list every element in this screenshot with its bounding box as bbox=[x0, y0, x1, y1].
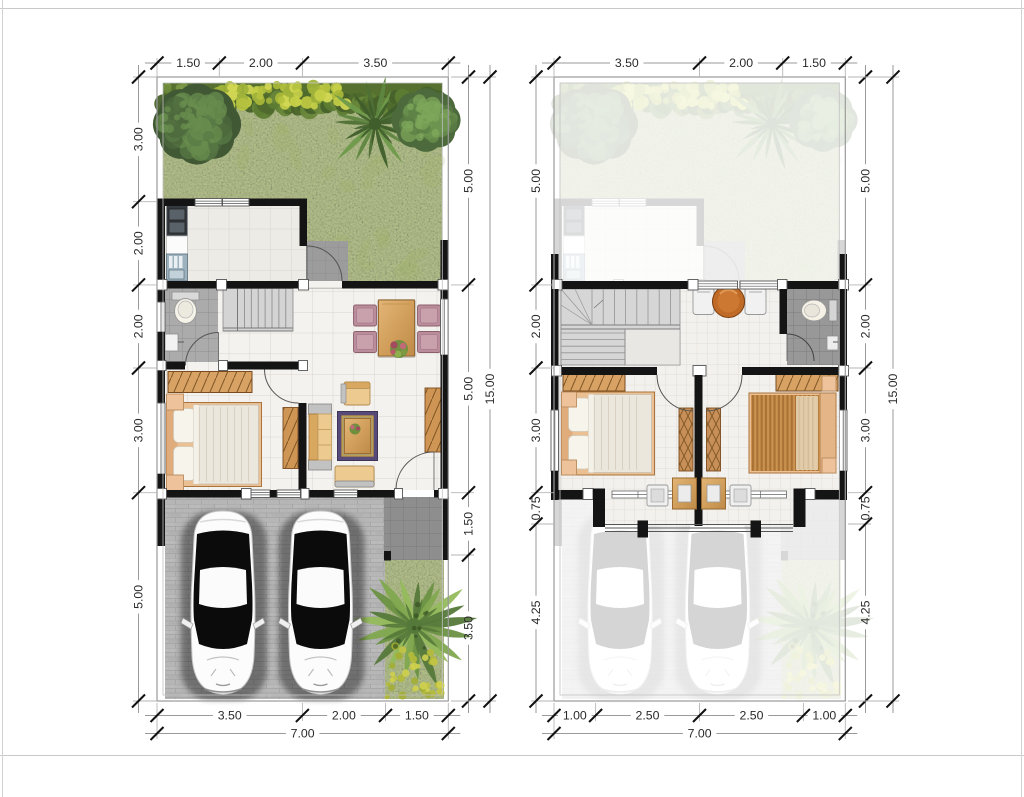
svg-text:15.00: 15.00 bbox=[886, 373, 900, 404]
svg-text:7.00: 7.00 bbox=[291, 727, 315, 741]
svg-text:1.50: 1.50 bbox=[176, 56, 200, 70]
svg-text:5.00: 5.00 bbox=[132, 585, 146, 609]
svg-text:4.25: 4.25 bbox=[859, 600, 873, 624]
svg-text:0.75: 0.75 bbox=[529, 496, 543, 520]
svg-text:2.00: 2.00 bbox=[132, 314, 146, 338]
svg-text:3.50: 3.50 bbox=[462, 616, 476, 640]
svg-text:2.50: 2.50 bbox=[740, 709, 764, 723]
svg-text:1.50: 1.50 bbox=[462, 512, 476, 536]
svg-text:7.00: 7.00 bbox=[688, 727, 712, 741]
svg-text:5.00: 5.00 bbox=[859, 169, 873, 193]
svg-text:1.50: 1.50 bbox=[802, 56, 826, 70]
svg-text:2.00: 2.00 bbox=[332, 709, 356, 723]
svg-text:2.00: 2.00 bbox=[729, 56, 753, 70]
svg-text:15.00: 15.00 bbox=[483, 373, 497, 404]
svg-text:3.50: 3.50 bbox=[218, 709, 242, 723]
svg-text:5.00: 5.00 bbox=[462, 169, 476, 193]
svg-text:3.50: 3.50 bbox=[363, 56, 387, 70]
svg-text:2.00: 2.00 bbox=[529, 314, 543, 338]
svg-text:0.75: 0.75 bbox=[859, 496, 873, 520]
svg-text:5.00: 5.00 bbox=[462, 377, 476, 401]
svg-text:3.00: 3.00 bbox=[859, 418, 873, 442]
svg-text:2.50: 2.50 bbox=[636, 709, 660, 723]
svg-text:2.00: 2.00 bbox=[132, 231, 146, 255]
svg-text:2.00: 2.00 bbox=[859, 314, 873, 338]
svg-text:5.00: 5.00 bbox=[529, 169, 543, 193]
svg-text:4.25: 4.25 bbox=[529, 600, 543, 624]
svg-text:3.00: 3.00 bbox=[132, 127, 146, 151]
svg-text:2.00: 2.00 bbox=[249, 56, 273, 70]
svg-text:1.00: 1.00 bbox=[563, 709, 587, 723]
svg-text:3.00: 3.00 bbox=[132, 418, 146, 442]
svg-text:3.50: 3.50 bbox=[615, 56, 639, 70]
svg-text:1.50: 1.50 bbox=[405, 709, 429, 723]
svg-text:1.00: 1.00 bbox=[812, 709, 836, 723]
svg-text:3.00: 3.00 bbox=[529, 418, 543, 442]
